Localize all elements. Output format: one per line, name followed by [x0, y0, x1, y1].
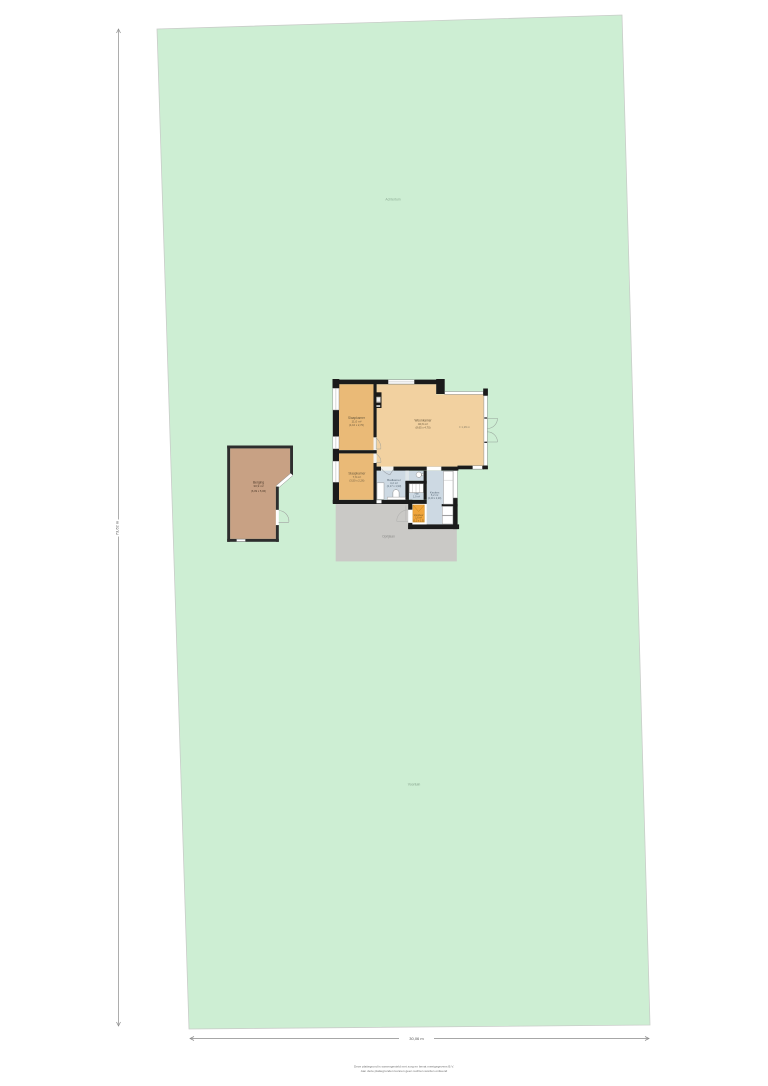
svg-text:± 1,29 m: ± 1,29 m	[459, 425, 471, 429]
svg-text:73,62 m: 73,62 m	[115, 520, 120, 535]
svg-text:(4,10 x 2,70): (4,10 x 2,70)	[349, 423, 364, 427]
svg-text:40,6 m²: 40,6 m²	[418, 422, 428, 426]
svg-text:7,9 m²: 7,9 m²	[353, 475, 362, 479]
svg-text:(6,09 x 5,06): (6,09 x 5,06)	[251, 489, 266, 493]
svg-text:30,06 m: 30,06 m	[409, 1036, 424, 1041]
svg-text:1,9 m²: 1,9 m²	[413, 495, 420, 498]
svg-text:Deze plattegrond is samengeste: Deze plattegrond is samengesteld met zor…	[354, 1064, 454, 1068]
svg-text:(2,40 x 2,20): (2,40 x 2,20)	[428, 497, 442, 500]
svg-text:Voortuin: Voortuin	[408, 783, 421, 787]
svg-text:30,9 m²: 30,9 m²	[253, 484, 263, 488]
svg-text:11,0 m²: 11,0 m²	[352, 420, 362, 424]
svg-text:(8,65 x 4,70): (8,65 x 4,70)	[415, 425, 430, 429]
svg-text:Aan deze plattegronden kunnen: Aan deze plattegronden kunnen geen recht…	[361, 1069, 448, 1073]
svg-text:(2,17 x 1,93): (2,17 x 1,93)	[387, 484, 402, 488]
svg-text:Oprijlaan: Oprijlaan	[382, 535, 395, 539]
svg-text:Achtertuin: Achtertuin	[385, 197, 400, 201]
svg-text:(1,2 x 1,3): (1,2 x 1,3)	[413, 519, 424, 522]
svg-text:(3,50 x 2,26): (3,50 x 2,26)	[349, 479, 364, 483]
